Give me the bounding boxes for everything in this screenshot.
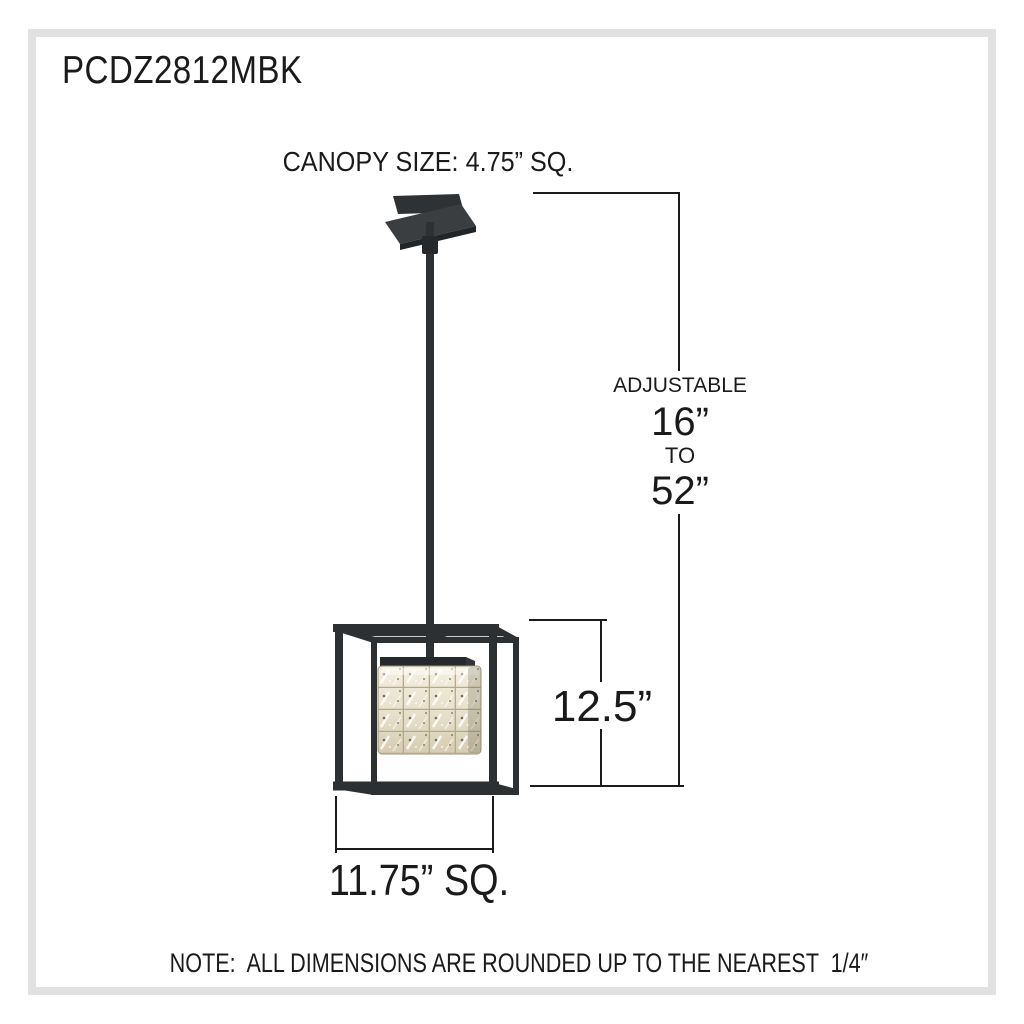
rod-collar — [422, 236, 438, 254]
dimension-note: NOTE: ALL DIMENSIONS ARE ROUNDED UP TO T… — [82, 948, 955, 978]
shade-facet-texture — [378, 666, 481, 754]
adjustable-min-value: 16” — [651, 401, 709, 443]
shade-top-highlight — [381, 668, 478, 675]
spec-diagram-page: PCDZ2812MBK CANOPY SIZE: 4.75” SQ. — [0, 0, 1024, 1024]
hang-rod — [426, 222, 434, 664]
adjustable-dimension-line-top — [533, 193, 679, 371]
width-dimension-label: 11.75” SQ. — [314, 858, 524, 904]
adjustable-text: ADJUSTABLE — [613, 371, 747, 401]
adjustable-dimension-label: ADJUSTABLE 16” TO 52” — [613, 371, 747, 513]
shade-top-plate — [380, 657, 466, 666]
dimension-note-text: NOTE: ALL DIMENSIONS ARE ROUNDED UP TO T… — [170, 948, 869, 978]
crystal-shade — [378, 657, 481, 754]
adjustable-to-text: TO — [665, 443, 695, 469]
height-dimension-label: 12.5” — [552, 684, 652, 730]
shade-right-shadow — [468, 667, 481, 753]
adjustable-max-value: 52” — [651, 469, 709, 513]
width-dimension-text: 11.75” SQ. — [329, 858, 509, 904]
